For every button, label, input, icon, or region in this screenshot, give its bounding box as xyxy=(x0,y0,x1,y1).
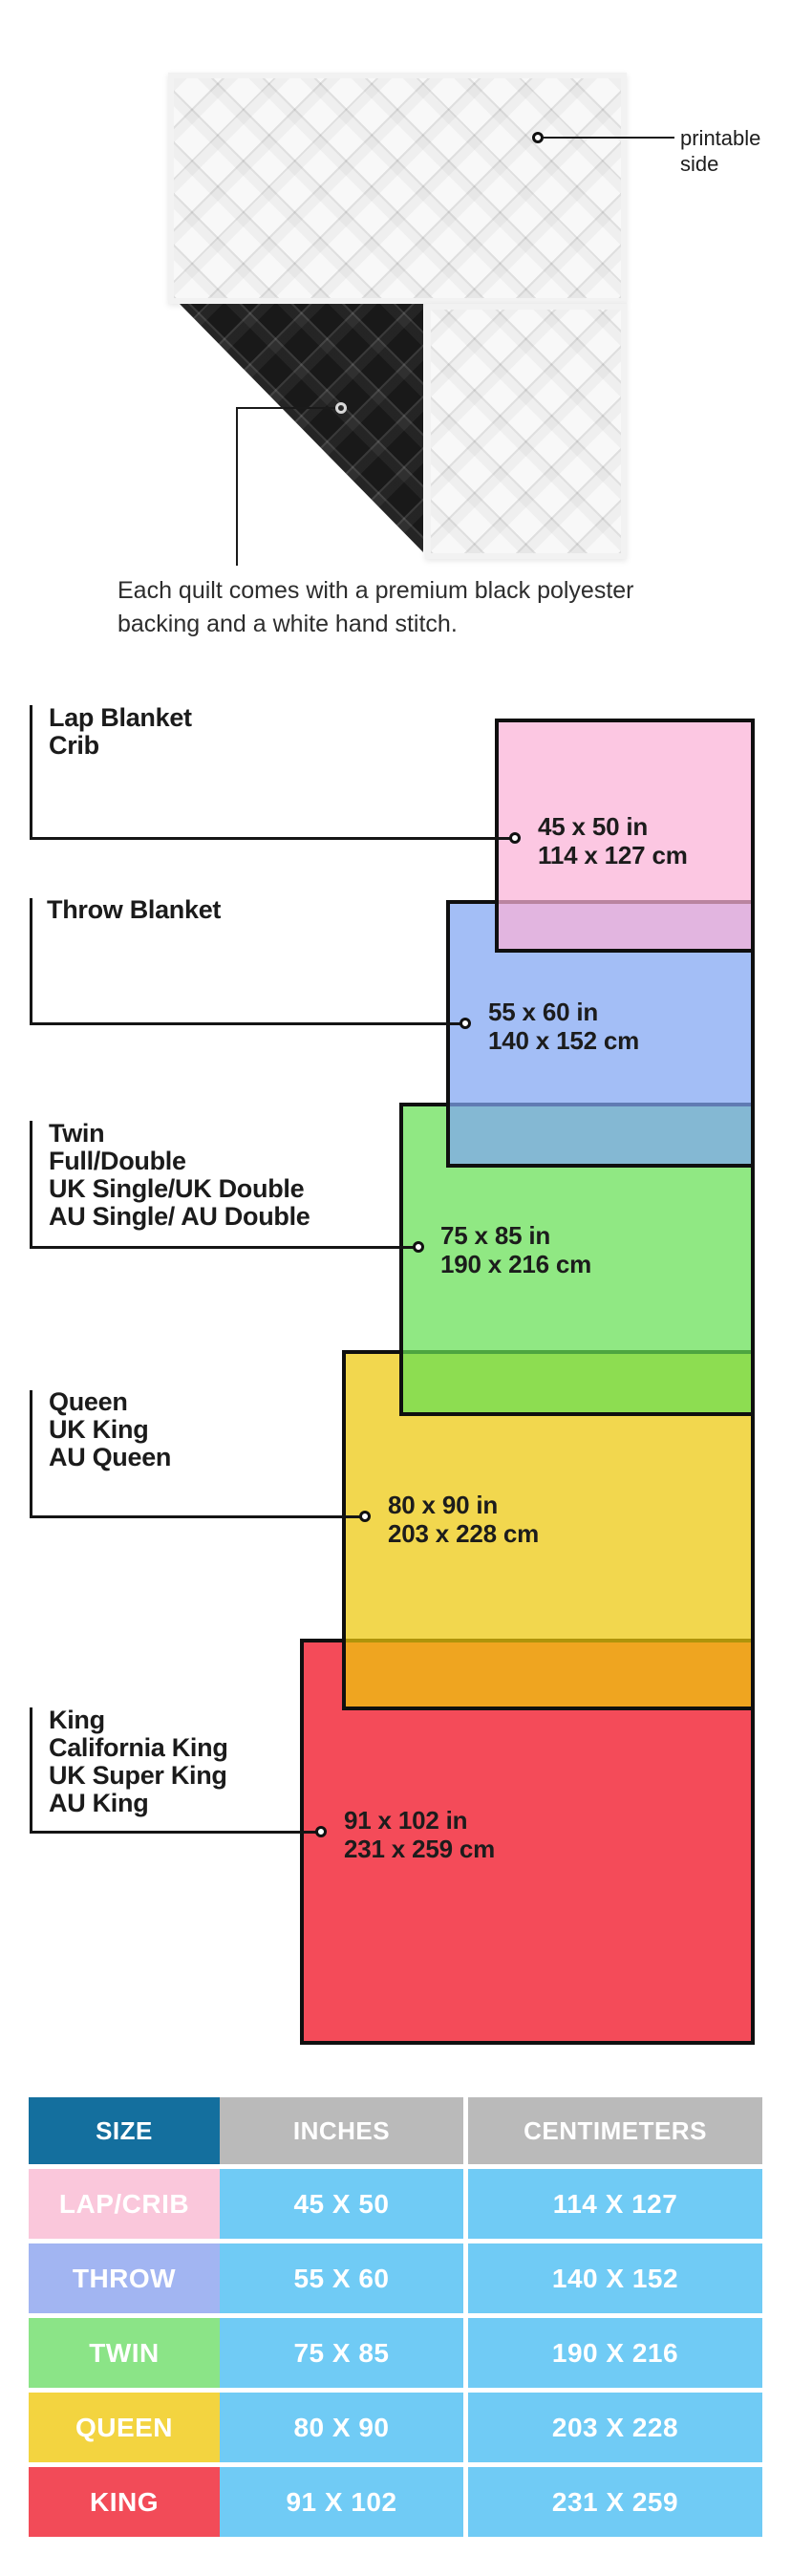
size-table-header-centimeters: CENTIMETERS xyxy=(463,2097,762,2164)
quilt-caption: Each quilt comes with a premium black po… xyxy=(118,574,729,641)
centimeters-cell: 114 X 127 xyxy=(463,2169,762,2239)
size-table-row-twin: TWIN75 X 85190 X 216 xyxy=(29,2318,762,2388)
printable-side-callout-dot xyxy=(532,132,544,143)
size-dims-centimeters-throw: 140 x 152 cm xyxy=(488,1026,639,1055)
quilt-caption-line1: Each quilt comes with a premium black po… xyxy=(118,574,729,608)
size-dims-centimeters-lap-crib: 114 x 127 cm xyxy=(538,841,688,869)
size-table-row-queen: QUEEN80 X 90203 X 228 xyxy=(29,2393,762,2462)
centimeters-cell: 190 X 216 xyxy=(463,2318,762,2388)
size-label-lap-crib: Lap BlanketCrib xyxy=(49,704,192,760)
size-dims-lap-crib: 45 x 50 in114 x 127 cm xyxy=(538,812,688,869)
size-label-line-throw-0: Throw Blanket xyxy=(47,896,221,924)
size-dims-throw: 55 x 60 in140 x 152 cm xyxy=(488,998,639,1055)
size-label-queen: QueenUK KingAU Queen xyxy=(49,1388,171,1471)
size-label-line-king-1: California King xyxy=(49,1734,228,1762)
size-dims-centimeters-king: 231 x 259 cm xyxy=(344,1835,495,1863)
callout-hline-lap-crib xyxy=(30,837,510,840)
callout-hline-twin xyxy=(30,1246,414,1249)
size-table-row-lap-crib: LAP/CRIB45 X 50114 X 127 xyxy=(29,2169,762,2239)
centimeters-cell: 231 X 259 xyxy=(463,2467,762,2537)
size-label-line-twin-2: UK Single/UK Double xyxy=(49,1175,310,1203)
size-label-line-lap-crib-0: Lap Blanket xyxy=(49,704,192,732)
size-label-line-king-3: AU King xyxy=(49,1790,228,1817)
callout-hline-throw xyxy=(30,1022,460,1025)
printable-side-callout-line xyxy=(544,137,674,139)
size-label-line-queen-1: UK King xyxy=(49,1416,171,1444)
printable-side-label: printable side xyxy=(680,125,760,177)
size-table-header-size: SIZE xyxy=(29,2097,220,2164)
inches-cell: 91 X 102 xyxy=(220,2467,463,2537)
size-label-line-twin-3: AU Single/ AU Double xyxy=(49,1203,310,1231)
size-table-row-throw: THROW55 X 60140 X 152 xyxy=(29,2243,762,2313)
quilt-front-top xyxy=(168,73,627,304)
callout-hline-queen xyxy=(30,1515,360,1518)
size-cell: THROW xyxy=(29,2243,220,2313)
quilt-front-column xyxy=(425,304,627,559)
size-dims-king: 91 x 102 in231 x 259 cm xyxy=(344,1806,495,1863)
callout-vline-queen xyxy=(30,1390,32,1517)
size-dims-inches-lap-crib: 45 x 50 in xyxy=(538,812,688,841)
size-label-line-king-0: King xyxy=(49,1707,228,1734)
backing-callout-dot xyxy=(335,402,347,414)
inches-cell: 75 X 85 xyxy=(220,2318,463,2388)
callout-dot-throw xyxy=(460,1018,471,1029)
quilt-black-backing-fold xyxy=(180,304,423,552)
size-cell: LAP/CRIB xyxy=(29,2169,220,2239)
quilt-size-chart-page: printable side Each quilt comes with a p… xyxy=(0,0,791,2576)
callout-hline-king xyxy=(30,1831,316,1834)
callout-dot-lap-crib xyxy=(509,832,521,844)
size-label-line-twin-0: Twin xyxy=(49,1120,310,1148)
size-dims-centimeters-queen: 203 x 228 cm xyxy=(388,1519,539,1548)
size-label-line-queen-0: Queen xyxy=(49,1388,171,1416)
size-dims-inches-king: 91 x 102 in xyxy=(344,1806,495,1835)
callout-dot-twin xyxy=(413,1241,424,1253)
size-label-line-lap-crib-1: Crib xyxy=(49,732,192,760)
inches-cell: 80 X 90 xyxy=(220,2393,463,2462)
backing-callout-vline xyxy=(236,407,238,566)
printable-side-label-line1: printable xyxy=(680,125,760,151)
size-dims-queen: 80 x 90 in203 x 228 cm xyxy=(388,1491,539,1548)
backing-callout-hline xyxy=(237,407,337,409)
size-dims-inches-twin: 75 x 85 in xyxy=(440,1221,591,1250)
size-label-line-queen-2: AU Queen xyxy=(49,1444,171,1471)
size-cell: KING xyxy=(29,2467,220,2537)
size-label-line-twin-1: Full/Double xyxy=(49,1148,310,1175)
centimeters-cell: 203 X 228 xyxy=(463,2393,762,2462)
size-dims-centimeters-twin: 190 x 216 cm xyxy=(440,1250,591,1278)
size-table-row-king: KING91 X 102231 X 259 xyxy=(29,2467,762,2537)
size-table: SIZEINCHESCENTIMETERSLAP/CRIB45 X 50114 … xyxy=(29,2097,762,2542)
printable-side-label-line2: side xyxy=(680,151,760,177)
size-dims-inches-queen: 80 x 90 in xyxy=(388,1491,539,1519)
quilt-caption-line2: backing and a white hand stitch. xyxy=(118,608,729,641)
inches-cell: 45 X 50 xyxy=(220,2169,463,2239)
size-table-header-row: SIZEINCHESCENTIMETERS xyxy=(29,2097,762,2164)
size-label-throw: Throw Blanket xyxy=(47,896,221,924)
callout-vline-throw xyxy=(30,898,32,1024)
size-label-twin: TwinFull/DoubleUK Single/UK DoubleAU Sin… xyxy=(49,1120,310,1231)
size-label-king: KingCalifornia KingUK Super KingAU King xyxy=(49,1707,228,1817)
callout-dot-king xyxy=(315,1826,327,1837)
size-dims-twin: 75 x 85 in190 x 216 cm xyxy=(440,1221,591,1278)
inches-cell: 55 X 60 xyxy=(220,2243,463,2313)
size-dims-inches-throw: 55 x 60 in xyxy=(488,998,639,1026)
centimeters-cell: 140 X 152 xyxy=(463,2243,762,2313)
callout-dot-queen xyxy=(359,1511,371,1522)
size-cell: TWIN xyxy=(29,2318,220,2388)
size-label-line-king-2: UK Super King xyxy=(49,1762,228,1790)
callout-vline-lap-crib xyxy=(30,705,32,839)
callout-vline-twin xyxy=(30,1121,32,1248)
callout-vline-king xyxy=(30,1707,32,1833)
size-table-header-inches: INCHES xyxy=(220,2097,463,2164)
size-cell: QUEEN xyxy=(29,2393,220,2462)
